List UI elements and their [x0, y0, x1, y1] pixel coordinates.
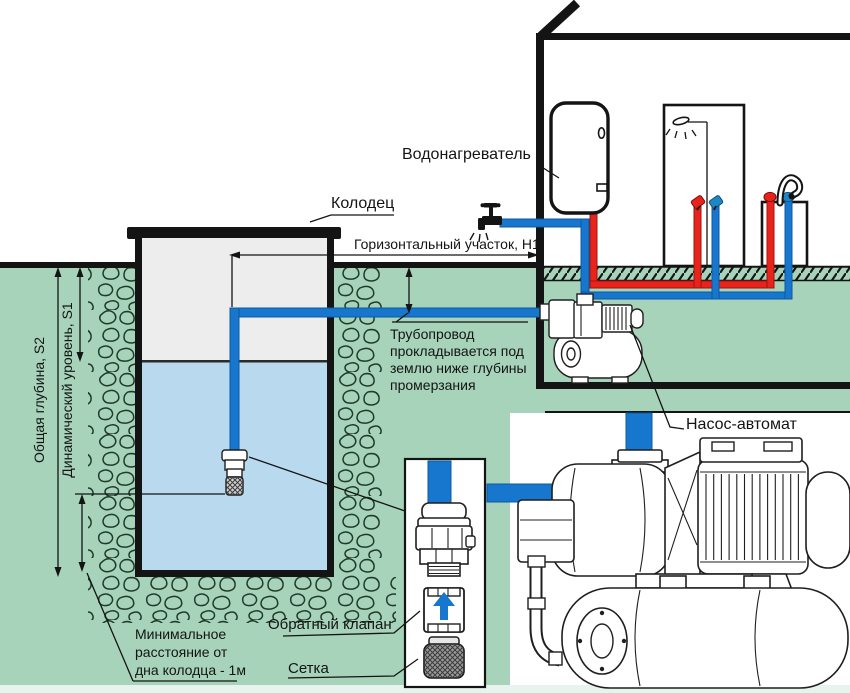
well-label: Колодец [331, 195, 394, 213]
check-valve-label: Обратный клапан [268, 616, 392, 633]
compression-fitting [416, 526, 472, 550]
pump-auto-label: Насос-автомат [686, 416, 797, 434]
water-heater-label: Водонагреватель [402, 146, 531, 164]
house-ceiling [536, 33, 850, 40]
dynamic-level-label: Динамический уровень, S1 [59, 302, 75, 477]
well-cap [127, 227, 341, 239]
min-distance-note: Минимальное расстояние от дна колодца - … [135, 625, 246, 679]
suction-pipe-vertical [230, 308, 239, 454]
house-roof [541, 3, 577, 36]
well-label-leader [310, 215, 394, 222]
total-depth-label: Общая глубина, S2 [31, 337, 47, 463]
water-heater [551, 103, 608, 213]
shower-cabin [664, 105, 744, 266]
pipeline-note: Трубопровод прокладывается под землю ниж… [390, 326, 527, 394]
suction-pipe-horizontal [230, 308, 545, 317]
arrow-up-icon [440, 604, 448, 620]
mesh-label: Сетка [288, 660, 329, 677]
horizontal-section-label: Горизонтальный участок, H1 [354, 236, 540, 252]
well-water-supply-diagram: Колодец Водонагреватель Горизонтальный у… [0, 0, 850, 693]
house-wall [536, 33, 544, 385]
filter-detail-inset [405, 459, 485, 687]
